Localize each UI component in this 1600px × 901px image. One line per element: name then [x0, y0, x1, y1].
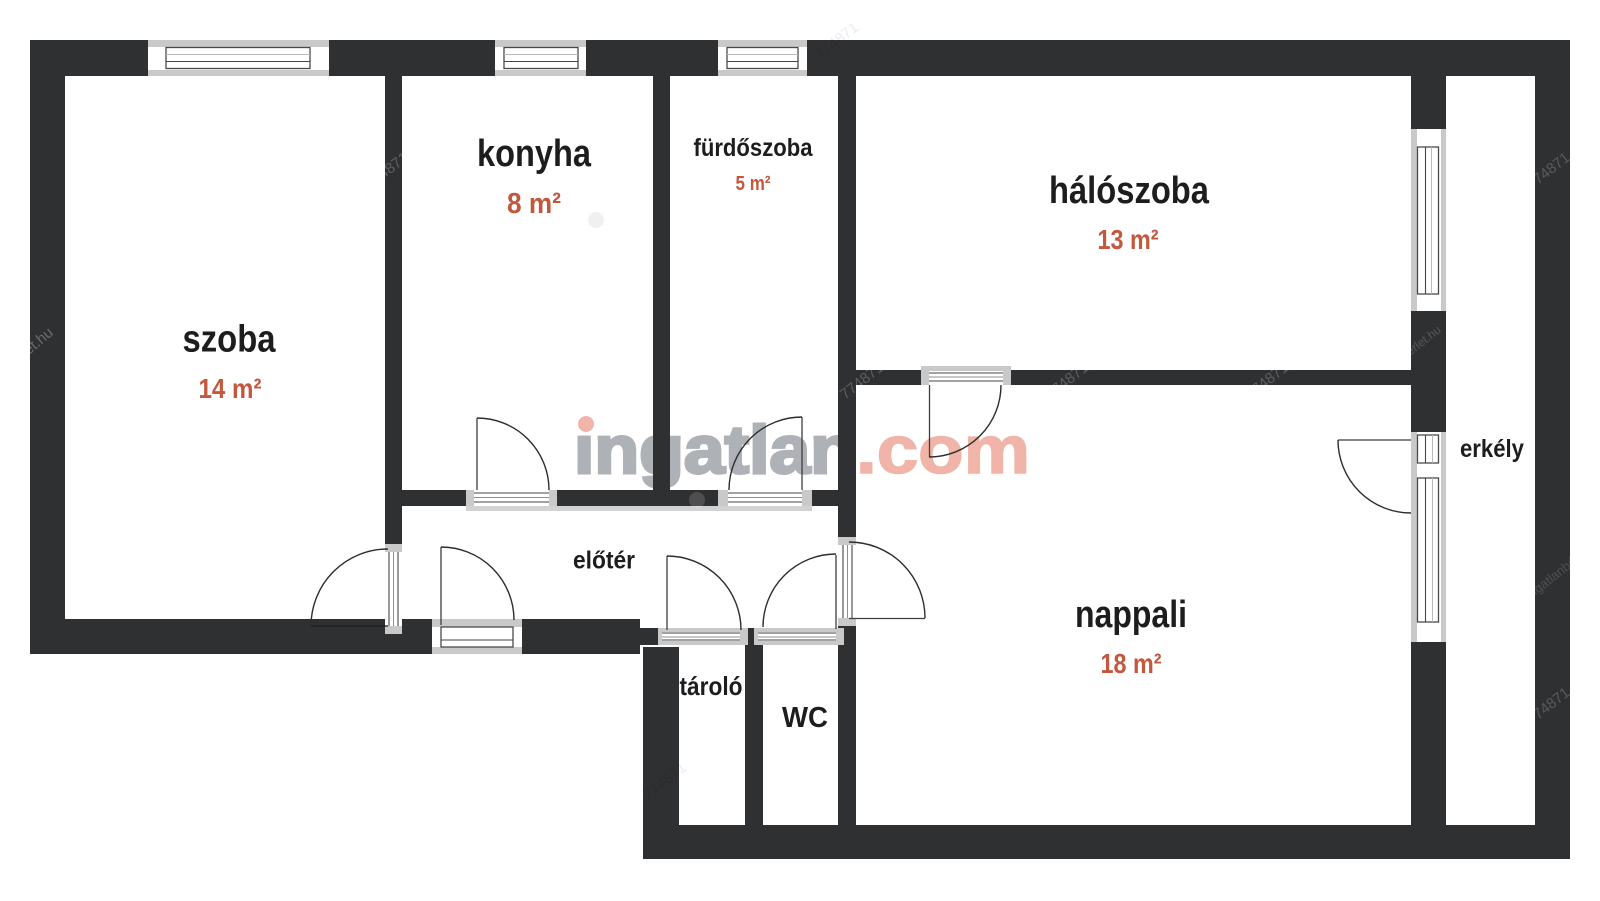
- svg-text:.com: .com: [856, 412, 1030, 488]
- svg-text:8 m²: 8 m²: [507, 188, 561, 220]
- svg-text:fürdőszoba: fürdőszoba: [694, 134, 814, 162]
- svg-text:tároló: tároló: [680, 671, 743, 701]
- svg-text:ingatlan: ingatlan: [574, 412, 855, 488]
- svg-text:13 m²: 13 m²: [1098, 224, 1159, 255]
- svg-text:konyha: konyha: [477, 133, 592, 175]
- svg-text:5 m²: 5 m²: [736, 173, 771, 195]
- svg-text:nappali: nappali: [1075, 594, 1187, 636]
- svg-text:14 m²: 14 m²: [199, 373, 262, 404]
- svg-text:szoba: szoba: [183, 319, 277, 361]
- svg-text:előtér: előtér: [573, 547, 635, 575]
- svg-text:18 m²: 18 m²: [1101, 648, 1162, 679]
- svg-text:hálószoba: hálószoba: [1049, 170, 1210, 212]
- svg-text:WC: WC: [782, 702, 828, 734]
- svg-text:erkély: erkély: [1460, 435, 1524, 463]
